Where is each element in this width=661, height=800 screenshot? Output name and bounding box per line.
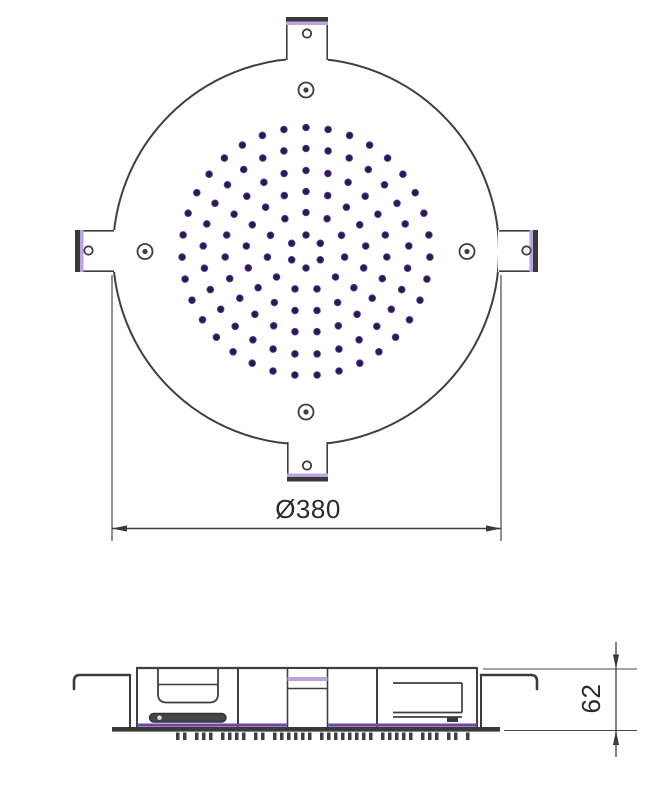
nozzle-dot — [273, 274, 280, 281]
nozzle-dot — [417, 297, 424, 304]
nozzle-dot — [303, 209, 310, 216]
nozzle-tooth — [421, 733, 425, 741]
nozzle-dot — [249, 221, 256, 228]
nozzle-dot — [270, 368, 277, 375]
nozzle-tooth — [402, 733, 406, 741]
nozzle-dot — [303, 265, 310, 272]
nozzle-dot — [324, 192, 331, 199]
nozzle-dot — [199, 316, 206, 323]
nozzle-tooth — [369, 733, 373, 741]
nozzle-tooth — [228, 733, 232, 741]
nozzle-tooth — [362, 733, 366, 741]
nozzle-dot — [376, 348, 383, 355]
arrowhead-left — [112, 525, 127, 531]
nozzle-tooth — [435, 733, 439, 741]
filter-slot — [150, 714, 227, 723]
nozzle-teeth-row — [176, 733, 470, 741]
nozzle-dot — [392, 334, 399, 341]
nozzle-dot — [375, 211, 382, 218]
nozzle-dot — [373, 323, 380, 330]
nozzle-dot — [317, 256, 324, 263]
nozzle-tooth — [254, 733, 258, 741]
nozzle-tooth — [280, 733, 284, 741]
nozzle-dot — [200, 243, 207, 250]
nozzle-dot — [303, 124, 310, 131]
nozzle-tooth — [428, 733, 432, 741]
mounting-bracket-right — [481, 675, 537, 729]
nozzle-tooth — [195, 733, 199, 741]
nozzle-dot — [249, 360, 256, 367]
nozzle-dot — [421, 210, 428, 217]
tab-hole-bottom — [303, 461, 311, 469]
nozzle-dot — [193, 189, 200, 196]
nozzle-dot — [292, 328, 299, 335]
nozzle-dot — [281, 148, 288, 155]
drawing-canvas: Ø380 — [0, 0, 661, 800]
nozzle-dot — [252, 311, 259, 318]
nozzle-dot — [185, 210, 192, 217]
nozzle-dot — [270, 322, 277, 329]
nozzle-dot — [341, 254, 348, 261]
nozzle-dot — [288, 256, 295, 263]
nozzle-dot — [427, 254, 434, 261]
nozzle-dot — [270, 346, 277, 353]
nozzle-dot — [365, 166, 372, 173]
nozzle-dot — [424, 276, 431, 283]
nozzle-dot — [325, 148, 332, 155]
arrowhead-top — [613, 655, 619, 670]
tab-hole-top — [303, 29, 311, 37]
nozzle-dot — [314, 286, 321, 293]
height-dimension: 62 — [483, 642, 637, 757]
nozzle-tooth — [294, 733, 298, 741]
height-label: 62 — [576, 684, 606, 714]
nozzle-tooth — [454, 733, 458, 741]
nozzle-dot — [224, 181, 231, 188]
nozzle-dot — [245, 265, 252, 272]
nozzle-dot — [271, 299, 278, 306]
nozzle-dot — [384, 155, 391, 162]
right-chamber-box — [393, 683, 462, 722]
nozzle-dot — [360, 265, 367, 272]
nozzle-dot — [217, 306, 224, 313]
nozzle-dot — [366, 142, 373, 149]
tab-hole-right — [522, 246, 530, 254]
nozzle-dot — [426, 232, 433, 239]
shower-face-circle — [113, 59, 499, 445]
nozzle-tooth — [176, 733, 180, 741]
nozzle-dot — [334, 299, 341, 306]
nozzle-tooth — [395, 733, 399, 741]
nozzle-tooth — [341, 733, 345, 741]
nozzle-dot — [356, 221, 363, 228]
nozzle-dot — [189, 297, 196, 304]
mounting-tab-right — [498, 230, 538, 272]
nozzle-dot — [182, 276, 189, 283]
nozzle-dot — [207, 286, 214, 293]
nozzle-tooth — [261, 733, 265, 741]
mounting-tab-top — [286, 17, 328, 61]
nozzle-dot — [292, 286, 299, 293]
nozzle-tooth — [301, 733, 305, 741]
nozzle-dot — [262, 204, 269, 211]
nozzle-dot — [212, 200, 219, 207]
nozzle-dot — [264, 254, 271, 261]
nozzle-dot — [404, 265, 411, 272]
nozzle-dot — [259, 132, 266, 139]
nozzle-dot — [400, 171, 407, 178]
left-chamber-recess — [158, 668, 218, 703]
nozzle-dot — [282, 215, 289, 222]
nozzle-dot — [221, 155, 228, 162]
mounting-tab-left — [75, 230, 115, 272]
inlet-seal-stripe — [288, 677, 328, 681]
nozzle-dot — [243, 243, 250, 250]
nozzle-dot — [343, 204, 350, 211]
nozzle-dot — [250, 336, 257, 343]
nozzle-tooth — [273, 733, 277, 741]
nozzle-dot — [201, 265, 208, 272]
mounting-tab-bottom — [287, 440, 328, 482]
side-view: 62 — [74, 642, 637, 757]
nozzle-dot — [281, 126, 288, 133]
nozzle-dot — [362, 243, 369, 250]
arrowhead-bottom — [613, 731, 619, 746]
nozzle-dot — [267, 232, 274, 239]
nozzle-dot — [292, 351, 299, 358]
nozzle-tooth — [334, 733, 338, 741]
right-chamber-foot — [447, 717, 458, 722]
nozzle-dot — [180, 232, 187, 239]
nozzle-dot — [226, 275, 233, 282]
filter-slot-pin — [157, 715, 162, 720]
nozzle-dot — [398, 286, 405, 293]
nozzle-dot — [222, 254, 229, 261]
nozzle-dot — [325, 126, 332, 133]
nozzle-tooth — [183, 733, 187, 741]
nozzle-tooth — [447, 733, 451, 741]
nozzle-dot — [206, 171, 213, 178]
nozzle-dot — [281, 170, 288, 177]
water-inlet — [288, 668, 328, 727]
nozzle-dot — [406, 316, 413, 323]
nozzle-dot — [255, 284, 262, 291]
nozzle-dot — [292, 372, 299, 379]
nozzle-dot — [405, 243, 412, 250]
nozzle-dot — [354, 311, 361, 318]
nozzle-dot — [303, 232, 310, 239]
nozzle-tooth — [409, 733, 413, 741]
nozzle-dot — [259, 155, 266, 162]
nozzle-tooth — [308, 733, 312, 741]
nozzle-dot — [356, 360, 363, 367]
nozzle-dot — [335, 322, 342, 329]
nozzle-tooth — [348, 733, 352, 741]
face-plate — [112, 727, 500, 732]
nozzle-dot — [223, 232, 230, 239]
nozzle-dot — [292, 307, 299, 314]
nozzle-dot — [345, 179, 352, 186]
nozzle-dot — [314, 307, 321, 314]
nozzle-tooth — [327, 733, 331, 741]
nozzle-dot — [412, 189, 419, 196]
nozzle-dot — [288, 240, 295, 247]
nozzle-dot — [402, 221, 409, 228]
nozzle-dot — [303, 188, 310, 195]
nozzle-dot — [379, 275, 386, 282]
nozzle-dot — [394, 200, 401, 207]
nozzle-tooth — [235, 733, 239, 741]
nozzle-dot — [346, 132, 353, 139]
nozzle-tooth — [466, 733, 470, 741]
nozzle-tooth — [381, 733, 385, 741]
nozzle-dot — [303, 145, 310, 152]
diameter-label: Ø380 — [275, 494, 341, 524]
nozzle-tooth — [221, 733, 225, 741]
nozzle-dot — [230, 348, 237, 355]
nozzle-dot — [232, 323, 239, 330]
tab-hole-left — [84, 246, 92, 254]
nozzle-dot — [381, 181, 388, 188]
nozzle-dot — [388, 306, 395, 313]
nozzle-dot — [203, 221, 210, 228]
nozzle-dot — [336, 368, 343, 375]
nozzle-tooth — [242, 733, 246, 741]
nozzle-tooth — [202, 733, 206, 741]
nozzle-dot — [325, 170, 332, 177]
nozzle-dot — [356, 336, 363, 343]
nozzle-tooth — [355, 733, 359, 741]
nozzle-tooth — [209, 733, 213, 741]
nozzle-dot — [314, 372, 321, 379]
top-view: Ø380 — [75, 17, 538, 541]
nozzle-dot — [240, 166, 247, 173]
nozzle-tooth — [388, 733, 392, 741]
nozzle-dot — [239, 142, 246, 149]
nozzle-dot — [369, 295, 376, 302]
nozzle-dot — [317, 240, 324, 247]
nozzle-dot — [213, 334, 220, 341]
nozzle-dot — [231, 211, 238, 218]
nozzle-dot — [314, 351, 321, 358]
technical-drawing-svg: Ø380 — [0, 0, 661, 800]
nozzle-dot — [383, 254, 390, 261]
nozzle-dot — [179, 254, 186, 261]
nozzle-tooth — [287, 733, 291, 741]
nozzle-dot — [382, 232, 389, 239]
nozzle-dot — [362, 193, 369, 200]
nozzle-dot — [314, 328, 321, 335]
nozzle-dot — [303, 167, 310, 174]
arrowhead-right — [486, 525, 501, 531]
nozzle-dot — [281, 192, 288, 199]
mounting-bracket-left — [74, 675, 130, 729]
nozzle-dot — [243, 193, 250, 200]
nozzle-dot — [346, 155, 353, 162]
nozzle-dot — [324, 215, 331, 222]
nozzle-dot — [261, 179, 268, 186]
nozzle-dot — [351, 284, 358, 291]
nozzle-dot — [332, 274, 339, 281]
nozzle-dot — [338, 232, 345, 239]
nozzle-dot — [336, 346, 343, 353]
nozzle-tooth — [320, 733, 324, 741]
nozzle-dot — [236, 295, 243, 302]
